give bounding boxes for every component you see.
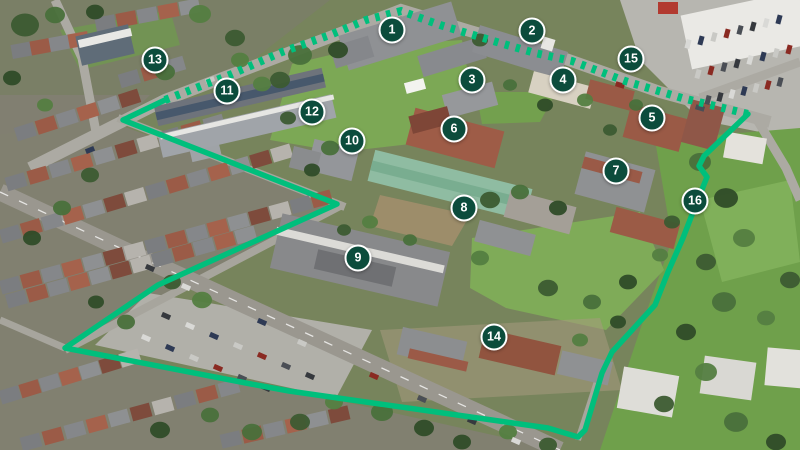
- tree: [253, 77, 271, 92]
- tree: [81, 168, 99, 183]
- tree: [583, 295, 601, 310]
- tree: [714, 188, 738, 208]
- map-marker-9[interactable]: 9: [345, 245, 372, 272]
- map-marker-13[interactable]: 13: [142, 47, 169, 74]
- tree: [192, 292, 212, 308]
- building: [764, 347, 800, 388]
- tree: [53, 201, 71, 216]
- map-marker-16[interactable]: 16: [682, 188, 709, 215]
- tree: [712, 292, 736, 312]
- tree: [654, 396, 674, 412]
- tree: [231, 53, 249, 68]
- tree: [45, 7, 65, 23]
- tree: [724, 412, 748, 432]
- tree: [453, 435, 471, 450]
- tree: [511, 185, 529, 200]
- tree: [242, 424, 262, 440]
- tree: [201, 408, 219, 423]
- tree: [610, 315, 626, 328]
- tree: [676, 324, 696, 340]
- map-marker-12[interactable]: 12: [299, 99, 326, 126]
- tree: [280, 111, 296, 124]
- tree: [471, 251, 489, 266]
- map-marker-10[interactable]: 10: [339, 128, 366, 155]
- map-marker-14[interactable]: 14: [481, 324, 508, 351]
- tree: [23, 231, 41, 246]
- tree: [603, 124, 617, 135]
- map-marker-4[interactable]: 4: [550, 67, 577, 94]
- tree: [11, 14, 39, 37]
- map-marker-15[interactable]: 15: [618, 46, 645, 73]
- tree: [733, 229, 755, 247]
- tree: [664, 215, 680, 228]
- tree: [549, 201, 567, 216]
- tree: [88, 295, 104, 308]
- tree: [328, 42, 348, 58]
- tree: [225, 30, 245, 46]
- map-marker-1[interactable]: 1: [379, 17, 406, 44]
- tree: [270, 72, 290, 88]
- map-marker-7[interactable]: 7: [603, 158, 630, 185]
- tree: [780, 272, 800, 288]
- tree: [414, 420, 434, 436]
- aerial-basemap: [0, 0, 800, 450]
- tree: [619, 275, 637, 290]
- tree: [503, 79, 517, 90]
- tree: [572, 333, 588, 346]
- tree: [117, 315, 135, 330]
- tree: [86, 5, 104, 20]
- tree: [337, 224, 351, 235]
- tree: [150, 422, 170, 438]
- tree: [480, 192, 500, 208]
- tree: [321, 141, 339, 156]
- map-marker-5[interactable]: 5: [639, 105, 666, 132]
- tree: [304, 163, 320, 176]
- tree: [189, 5, 211, 23]
- tree: [37, 98, 53, 111]
- tree: [766, 434, 786, 450]
- tree: [3, 71, 21, 86]
- tree: [757, 311, 775, 326]
- map-marker-2[interactable]: 2: [519, 18, 546, 45]
- map-marker-6[interactable]: 6: [441, 116, 468, 143]
- tree: [696, 254, 716, 270]
- tree: [538, 280, 558, 296]
- tree: [537, 98, 553, 111]
- tree: [695, 363, 717, 381]
- campus-aerial-map: 12345678910111213141516: [0, 0, 800, 450]
- map-marker-3[interactable]: 3: [459, 67, 486, 94]
- tree: [362, 215, 378, 228]
- tree: [577, 93, 593, 106]
- tree: [652, 248, 668, 261]
- tree: [499, 425, 517, 440]
- tree: [290, 414, 310, 430]
- building: [658, 2, 678, 14]
- map-marker-11[interactable]: 11: [214, 78, 241, 105]
- map-marker-8[interactable]: 8: [451, 195, 478, 222]
- tree: [403, 234, 417, 245]
